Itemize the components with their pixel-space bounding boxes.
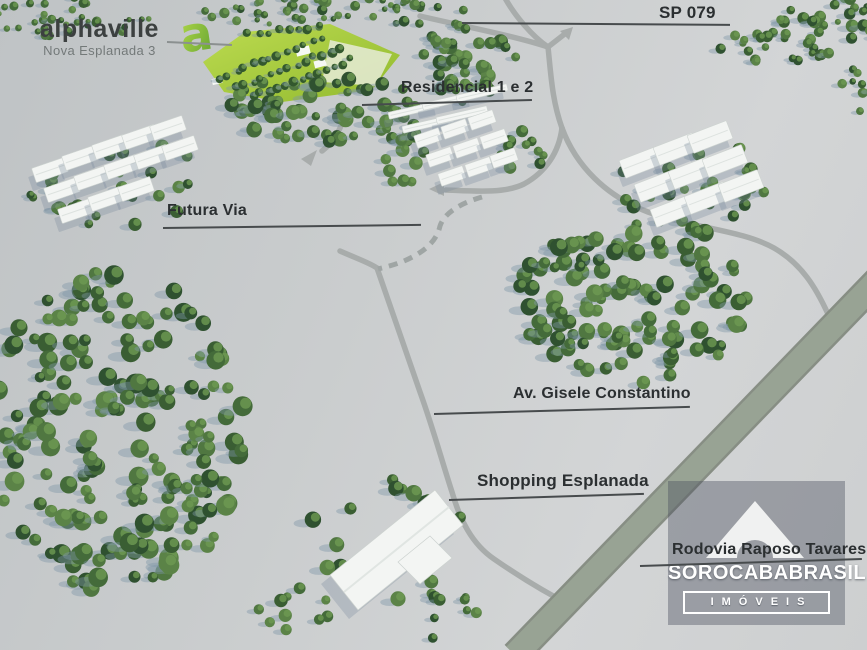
logo-brand: alphaville xyxy=(40,16,159,42)
label-av-gisele: Av. Gisele Constantino xyxy=(513,385,691,403)
label-shopping: Shopping Esplanada xyxy=(477,471,649,491)
label-residencial: Residencial 1 e 2 xyxy=(401,79,533,97)
label-sp-079: SP 079 xyxy=(659,3,716,23)
alphaville-a-icon: a xyxy=(172,6,230,64)
watermark-name: SOROCABABRASIL xyxy=(668,562,845,585)
road-futura-via-dashed xyxy=(378,197,482,269)
label-rodovia: Rodovia Raposo Tavares xyxy=(672,541,866,559)
watermark-tagline: IMÓVEIS xyxy=(683,591,830,614)
alphaville-logo: a alphaville Nova Esplanada 3 xyxy=(40,16,159,58)
aerial-site-map: a alphaville Nova Esplanada 3 SP 079 Res… xyxy=(0,0,867,650)
svg-text:a: a xyxy=(176,6,216,64)
logo-subtitle: Nova Esplanada 3 xyxy=(40,43,159,58)
label-futura-via: Futura Via xyxy=(167,202,247,220)
